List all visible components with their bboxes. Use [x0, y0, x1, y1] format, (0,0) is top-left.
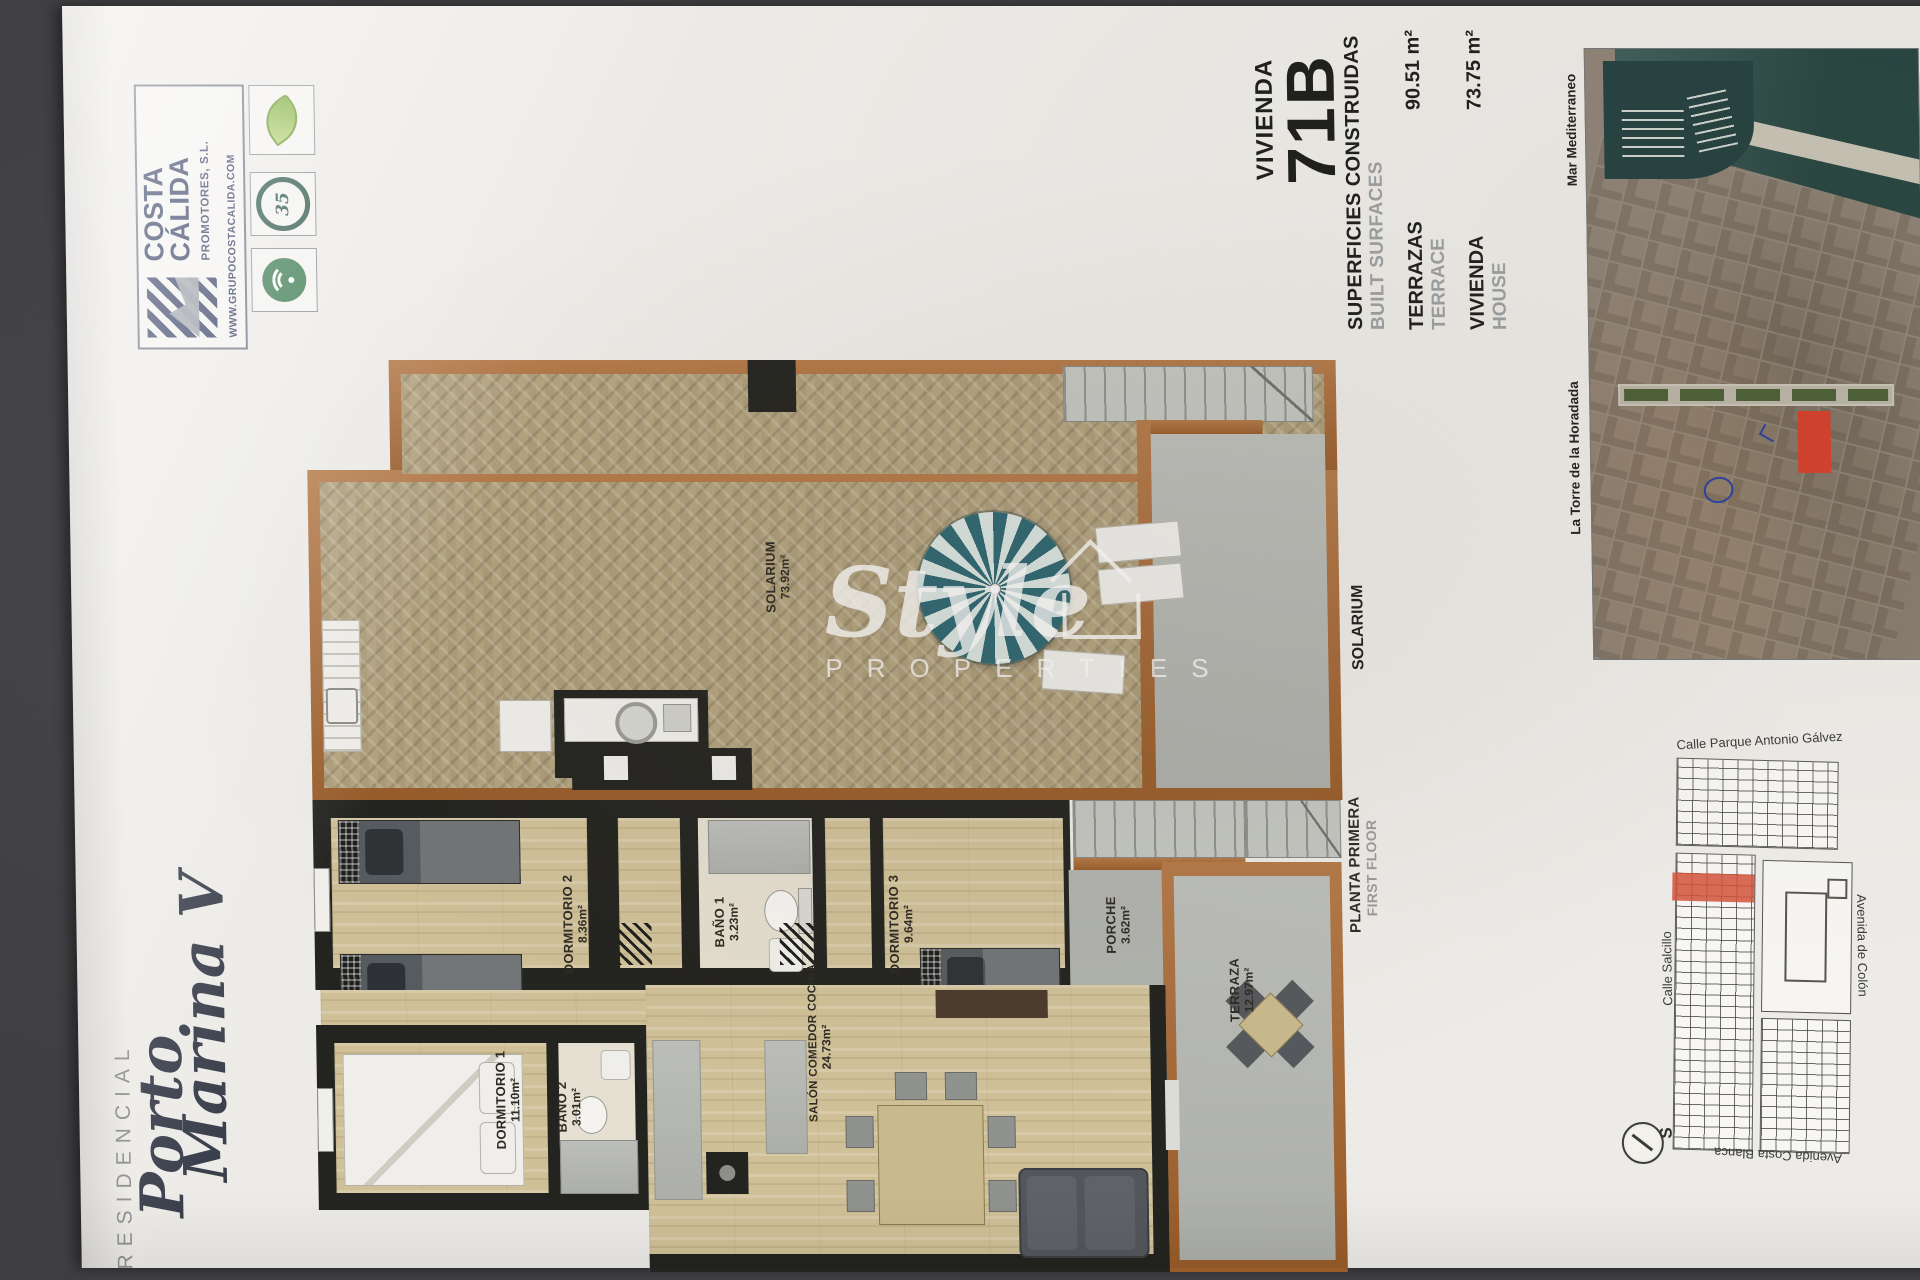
compass-south-label: S — [1657, 1123, 1675, 1143]
badge-years-number: 35 — [273, 192, 293, 216]
map-marina-docks-1 — [1622, 105, 1685, 157]
bano2-sink — [600, 1050, 630, 1080]
bed-dorm2-1 — [338, 820, 521, 884]
room-label-solarium: SOLARIUM 73.92m² — [763, 532, 794, 622]
siteplan-pool-block — [1761, 860, 1853, 1014]
project-name-line2: Marina V — [171, 805, 237, 1182]
terraza-door-opening — [1165, 1080, 1180, 1150]
room-label-dormitorio1: DORMITORIO 1 11.10m² — [493, 1035, 525, 1165]
siteplan-top-row — [1676, 758, 1839, 850]
solarium-chimney — [748, 360, 797, 412]
map-avenue-median — [1624, 389, 1888, 401]
street-label-right: Avenida de Colón — [1854, 878, 1871, 1013]
house-icon — [1062, 551, 1141, 639]
room-label-porche: PORCHE 3.62m² — [1104, 880, 1135, 970]
window-dorm2 — [314, 868, 331, 932]
map-avenue — [1620, 386, 1892, 404]
bano1-shower — [708, 820, 811, 874]
map-highlighted-plot — [1797, 411, 1831, 473]
solarium-stair-corner — [1251, 366, 1314, 422]
terraces-label-es: TERRAZAS — [1404, 221, 1429, 330]
street-label-left: Calle Salcillo — [1659, 914, 1676, 1024]
unit-title-block: VIVIENDA 71B — [1250, 35, 1348, 205]
terraza-stair-corner — [1300, 800, 1341, 858]
map-label-town: La Torre de la Horadada — [1566, 373, 1585, 543]
unit-number: 71B — [1278, 35, 1345, 205]
floor1-entry-stairs — [1072, 800, 1245, 858]
window-dorm1 — [317, 1088, 334, 1152]
room-label-terraza: TERRAZA 12.97m² — [1227, 943, 1258, 1038]
solarium-wall-opening-1 — [604, 756, 628, 780]
room-label-bano2: BAÑO 2 3.01m² — [555, 1062, 586, 1152]
solarium-counter-square — [499, 700, 552, 752]
photo-of-floorplan-sheet: { "branding": { "company_name_line1": "C… — [0, 0, 1920, 1280]
solarium-sink-left — [326, 688, 359, 724]
terraces-value: 90.51 m² — [1401, 30, 1447, 110]
paper-sheet: COSTA CÁLIDA PROMOTORES, S.L. WWW.GRUPOC… — [62, 6, 1920, 1268]
dining-chair-5 — [895, 1072, 927, 1100]
project-title-block: RESIDENCIAL Porto Marina V — [107, 805, 294, 1270]
developer-logo-block: COSTA CÁLIDA PROMOTORES, S.L. WWW.GRUPOC… — [134, 85, 248, 350]
room-label-dormitorio2: DORMITORIO 2 8.36m² — [560, 859, 592, 989]
floor1-passage-floor — [825, 818, 872, 968]
solarium-room-area: 73.92m² — [778, 532, 793, 622]
siteplan-highlighted-unit — [1672, 873, 1754, 903]
solarium-inner-wall-h — [1151, 420, 1263, 434]
floor1-corridor-floor — [320, 990, 646, 1028]
company-name-line2: CÁLIDA — [167, 157, 194, 262]
location-satellite-map — [1584, 48, 1920, 660]
kitchen-counter-1 — [652, 1040, 703, 1200]
siteplan-pool-house — [1827, 879, 1847, 900]
surfaces-header-en: BUILT SURFACES — [1363, 30, 1390, 330]
terraces-label-en: TERRACE — [1427, 221, 1451, 330]
room-label-bano1: BAÑO 1 3.23m² — [712, 875, 743, 970]
kitchen-counter-2 — [764, 1040, 808, 1154]
room-terraza-floor — [1174, 876, 1336, 1260]
room-label-dormitorio3: DORMITORIO 3 9.64m² — [886, 859, 918, 989]
dining-chair-6 — [945, 1072, 977, 1100]
surfaces-header-es: SUPERFICIES CONSTRUIDAS — [1340, 30, 1368, 330]
solarium-wall-opening-2 — [712, 756, 736, 780]
room-label-salon: SALÓN COMEDOR COCINA 24.73m² — [806, 972, 838, 1122]
house-label-en: HOUSE — [1489, 236, 1512, 330]
floor1-title: PLANTA PRIMERA FIRST FLOOR — [1346, 803, 1382, 933]
siteplan-right-column — [1760, 1018, 1851, 1154]
compass-needle — [1631, 1134, 1653, 1152]
dining-chair-3 — [987, 1116, 1016, 1148]
surfaces-row-terraces: TERRAZAS TERRACE 90.51 m² — [1401, 30, 1451, 330]
house-value: 73.75 m² — [1462, 30, 1508, 110]
dining-chair-1 — [845, 1116, 874, 1148]
35-years-icon: 35 — [256, 177, 311, 231]
floor1-hatch-2 — [779, 923, 814, 965]
kitchen-island — [706, 1152, 749, 1194]
surfaces-row-house: VIVIENDA HOUSE 73.75 m² — [1462, 30, 1512, 330]
wifi-icon — [262, 258, 307, 302]
siteplan-pool — [1784, 891, 1827, 982]
site-plan — [1668, 733, 1867, 1158]
company-name: COSTA CÁLIDA — [141, 157, 194, 262]
map-marina-water — [1603, 61, 1755, 179]
watermark-subtitle: PROPERTIES — [825, 653, 1225, 684]
solarium-counter-left — [322, 620, 362, 752]
agency-watermark: Style PROPERTIES — [824, 555, 1227, 715]
map-label-sea: Mar Mediterraneo — [1563, 55, 1581, 205]
domotics-badge — [251, 248, 318, 312]
company-website: WWW.GRUPOCOSTACALIDA.COM — [225, 154, 240, 337]
tv-sideboard — [935, 990, 1047, 1018]
dining-chair-4 — [988, 1180, 1017, 1212]
dining-table — [877, 1105, 985, 1225]
eco-badge — [248, 85, 315, 155]
floor1-hatch-1 — [617, 923, 652, 965]
sofa — [1018, 1168, 1149, 1258]
solarium-round-sink — [615, 702, 658, 744]
solarium-hob — [663, 704, 691, 732]
leaf-icon — [255, 94, 308, 147]
dining-chair-2 — [846, 1180, 875, 1212]
map-marina-docks-2 — [1685, 84, 1738, 153]
developer-logo-box: COSTA CÁLIDA PROMOTORES, S.L. WWW.GRUPOC… — [134, 85, 248, 350]
company-suffix: PROMOTORES, S.L. — [199, 141, 213, 261]
house-label-es: VIVIENDA — [1466, 236, 1490, 330]
experience-badge: 35 — [250, 172, 317, 236]
solarium-side-label: SOLARIUM — [1349, 590, 1366, 670]
watermark-name: Style — [823, 546, 1092, 659]
surfaces-table: SUPERFICIES CONSTRUIDAS BUILT SURFACES T… — [1340, 30, 1535, 330]
